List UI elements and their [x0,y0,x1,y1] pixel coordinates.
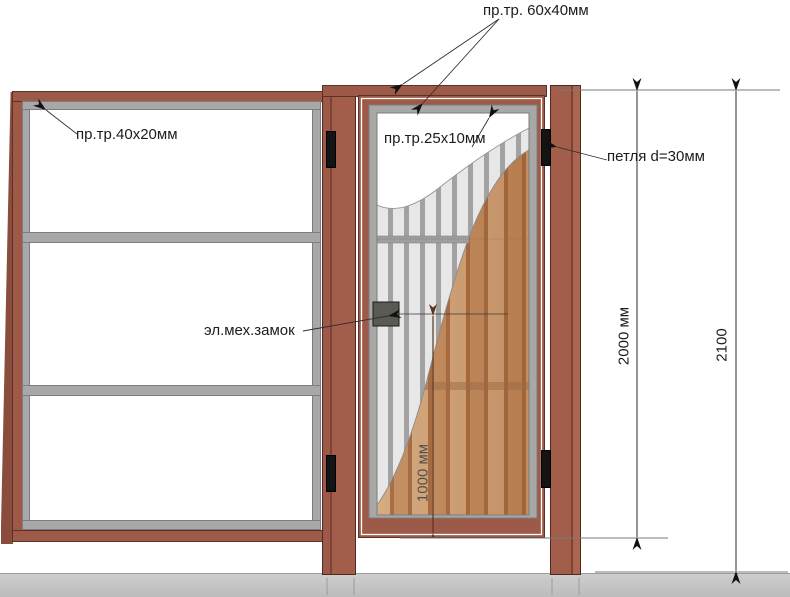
label-hinge: петля d=30мм [607,148,705,165]
hinge-post-top [326,131,336,168]
leader-40x20 [46,110,77,134]
fence-rail-bottom [22,520,321,530]
ground [0,573,790,597]
technical-drawing-canvas: пр.тр. 60х40мм пр.тр.40х20мм пр.тр.25х10… [0,0,790,597]
dim-text-2100: 2100 [714,328,731,361]
lock-body [373,302,399,326]
hinge-gate-top [541,129,551,166]
hinge-post-bottom [326,455,336,492]
label-tube-25x10: пр.тр.25х10мм [384,130,486,147]
gate-leaf [358,95,545,538]
leader-60x40-a [403,19,499,84]
label-tube-60x40: пр.тр. 60х40мм [483,2,589,19]
dim-text-1000: 1000 мм [415,444,432,502]
gate-rail-sketch [377,236,469,243]
fence-rail-top [22,101,321,110]
fence-rail-middle-2 [22,385,321,396]
fence-frame-left-vertical [22,101,30,530]
label-tube-40x20: пр.тр.40х20мм [76,126,178,143]
fence-rail-middle-1 [22,232,321,243]
fence-bottom-band [12,530,323,542]
label-lock: эл.мех.замок [204,322,295,339]
hinge-gate-bottom [541,450,551,488]
dim-text-2000: 2000 мм [616,307,633,365]
fence-frame-right-vertical [312,101,321,530]
right-post [550,85,581,575]
